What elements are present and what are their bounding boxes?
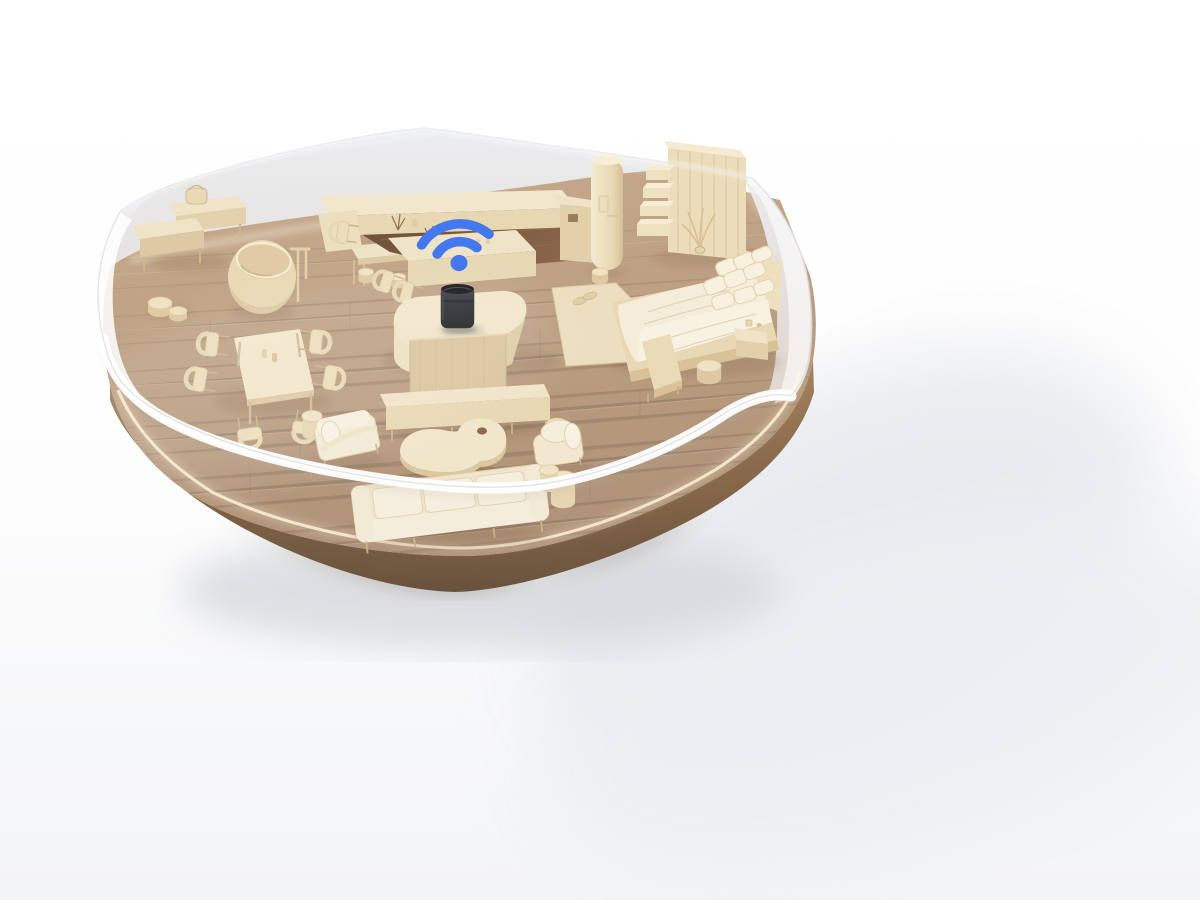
- air-conditioner-column: [591, 155, 623, 270]
- small-stool: [592, 268, 608, 284]
- render-canvas: [0, 0, 1200, 900]
- storage-basket: [186, 186, 207, 205]
- scene-svg: [0, 0, 1200, 900]
- round-stool: [697, 360, 721, 384]
- bowl: [477, 427, 487, 434]
